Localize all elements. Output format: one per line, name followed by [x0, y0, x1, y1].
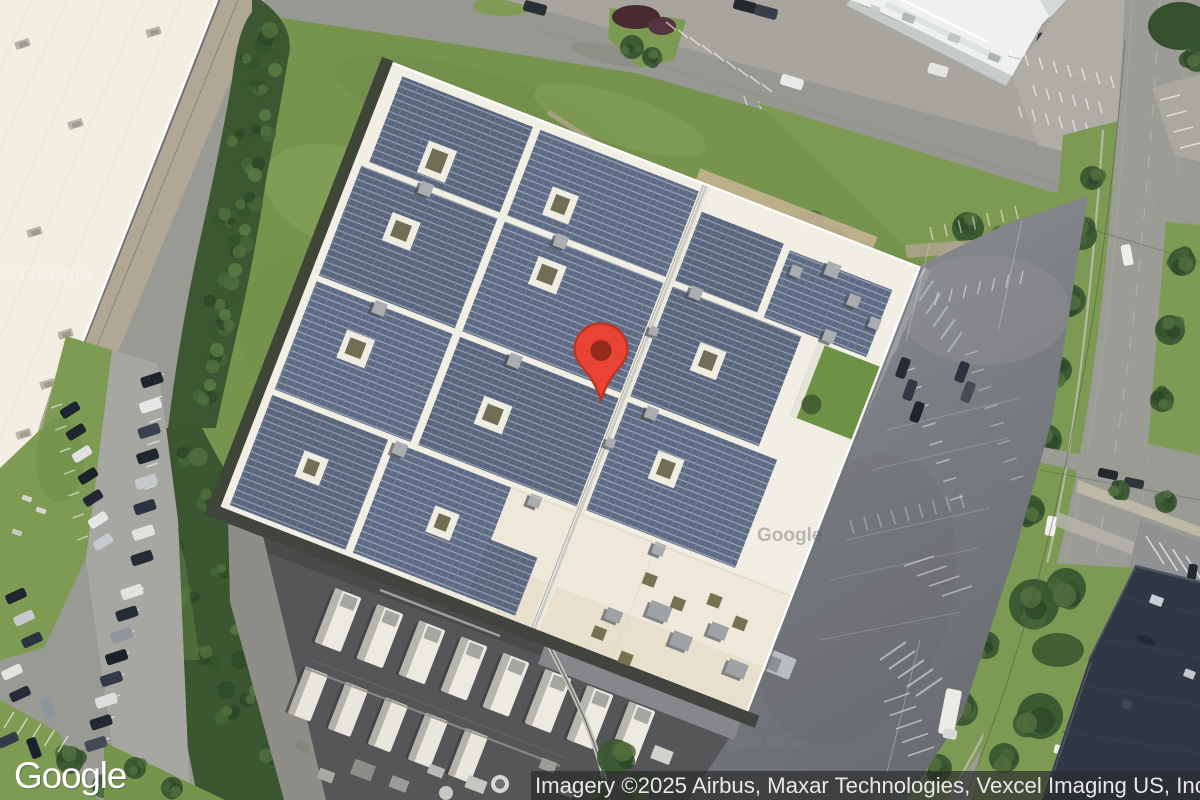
- svg-text:Imagery ©2025 Airbus, Maxar Te: Imagery ©2025 Airbus, Maxar Technologies…: [535, 773, 1200, 798]
- svg-text:5 Google: 5 Google: [2, 263, 92, 286]
- svg-text:Google: Google: [757, 525, 822, 546]
- svg-text:Google: Google: [14, 755, 126, 796]
- svg-text:©2025 Vexcel: ©2025 Vexcel: [726, 735, 800, 749]
